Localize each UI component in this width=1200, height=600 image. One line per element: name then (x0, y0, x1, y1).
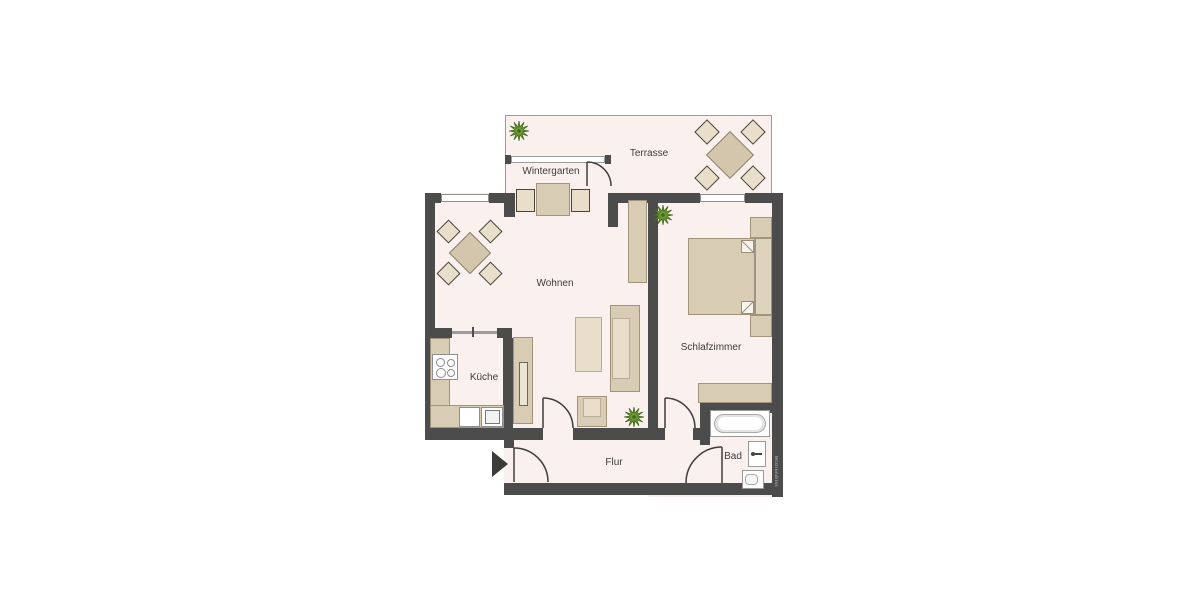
entrance-door-arc (514, 448, 548, 482)
wall-top-left-b (489, 193, 515, 203)
bath-door-arc (686, 447, 722, 483)
sideboard (513, 337, 533, 424)
sofa (610, 305, 640, 392)
pillow (741, 301, 754, 314)
wall-bath-left (700, 413, 710, 445)
room-label-flur: Flur (605, 458, 622, 468)
bed-headboard (755, 238, 772, 315)
plant-icon (653, 205, 673, 225)
wall-stub-right (608, 203, 618, 227)
wall-right (772, 203, 783, 497)
wall-hall-left (504, 440, 514, 448)
bathtub (710, 410, 770, 437)
kitchen-sink (459, 407, 480, 427)
coffee-table (575, 317, 602, 372)
pillow (741, 240, 754, 253)
plant-icon (624, 407, 644, 427)
room-label-wohnen: Wohnen (536, 279, 573, 289)
plant-icon (509, 121, 529, 141)
wall-stub-left (504, 203, 515, 217)
wintergarten-table (536, 183, 570, 216)
nightstand-bottom (750, 315, 772, 337)
wintergarten-chair-right (571, 189, 590, 212)
wintergarten-door-arc (587, 162, 611, 186)
wall-hall-top-a (514, 428, 543, 440)
bedroom-window (700, 194, 745, 202)
bathroom-sink (748, 441, 766, 467)
watermark: McGrundriss (774, 456, 779, 488)
living-door-arc (543, 398, 573, 428)
wintergarten-chair-left (516, 189, 535, 212)
room-label-bad: Bad (724, 452, 742, 462)
wall-kitchen-top-b (497, 328, 512, 338)
kitchen-pass-tick (472, 327, 474, 337)
wall-top-right-b (745, 193, 783, 203)
bedroom-door-arc (665, 398, 695, 428)
wall-kitchen-bottom (425, 428, 514, 440)
wall-kitchen-top-a (425, 328, 452, 338)
wall-kitchen-right (503, 338, 513, 440)
nightstand-top (750, 217, 772, 238)
wall-hall-top-b (573, 428, 665, 440)
kitchen-pass-line (452, 331, 497, 334)
toilet (742, 470, 764, 489)
stove (432, 354, 458, 380)
living-window (441, 194, 489, 202)
floor-plan: Terrasse Wintergarten Wohnen Küche Schla… (0, 0, 1200, 600)
wall-top-left-a (425, 193, 441, 203)
room-label-kueche: Küche (470, 373, 498, 383)
armchair (577, 396, 607, 427)
room-label-schlafzimmer: Schlafzimmer (681, 343, 742, 353)
tall-cabinet (628, 200, 647, 283)
room-label-wintergarten: Wintergarten (522, 167, 579, 177)
entrance-arrow-icon (492, 451, 508, 477)
wardrobe (698, 383, 772, 403)
wall-living-bedroom-divider (648, 203, 658, 428)
wall-top-right-a (608, 193, 700, 203)
kitchen-oven (481, 407, 503, 427)
room-label-terrasse: Terrasse (630, 149, 668, 159)
